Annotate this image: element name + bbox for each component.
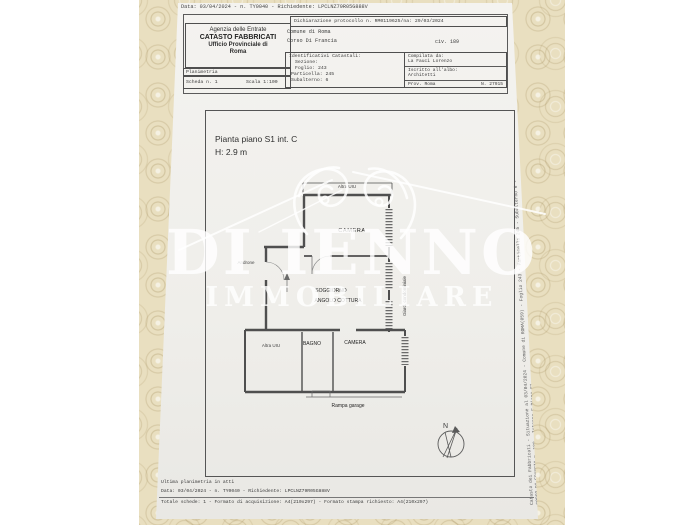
compiler-number: N. 27915 — [481, 81, 503, 88]
north-label: N — [443, 423, 448, 430]
footer-line2: Data: 03/04/2024 - n. TY0040 - Richieden… — [161, 489, 330, 494]
office-line3: Ufficio Provinciale di — [186, 42, 290, 48]
screenshot-root: Data: 03/04/2024 - n. TY0040 - Richieden… — [0, 0, 700, 525]
label-giardino-condominiale: Giard. condominiale — [402, 276, 407, 316]
sheet-number: Scheda n. 1 — [186, 80, 218, 85]
doc-type-cell: Planimetria — [183, 68, 291, 76]
room-label-angolo-cottura: ANGOLO COTTURA — [308, 298, 368, 304]
office-line1: Agenzia delle Entrate — [186, 27, 290, 33]
compiler-prov: Prov. Roma — [408, 81, 436, 88]
footer-divider — [159, 497, 534, 498]
footer-line1: Ultima planimetria in atti — [161, 480, 234, 485]
sheet-row: Scheda n. 1 Scala 1:100 — [183, 76, 291, 89]
room-label-soggiorno: SOGGIORNO — [301, 288, 361, 294]
label-rampa-garage: Rampa garage — [318, 403, 378, 409]
office-box: Agenzia delle Entrate CATASTO FABBRICATI… — [185, 23, 291, 68]
request-header-line: Data: 03/04/2024 - n. TY0040 - Richieden… — [181, 4, 368, 10]
room-label-camera-top: CAMERA — [327, 228, 377, 234]
document-page: Data: 03/04/2024 - n. TY0040 - Richieden… — [154, 0, 540, 522]
protocol-box: Dichiarazione protocollo n. RM0119625/na… — [290, 16, 507, 27]
cadastral-box: Identificativi Catastali: Sezione: Fogli… — [285, 52, 405, 88]
room-label-neighbor-top: Altra UIU — [322, 184, 372, 189]
room-label-androne: Androne — [226, 260, 266, 265]
compiler-box: Compilata da: La Fauci Lorenzo Iscritto … — [404, 52, 507, 88]
street-line: Corso Di Francia — [287, 38, 337, 44]
compiler-name: La Fauci Lorenzo — [408, 59, 506, 64]
compiler-row1: Compilata da: La Fauci Lorenzo — [405, 53, 506, 67]
compiler-row3: Prov. Roma N. 27915 — [405, 81, 506, 88]
comune-line: Comune di Roma — [287, 29, 331, 35]
side-margin-line1: Catasto dei Fabbricati - Situazione al 0… — [513, 173, 535, 505]
civic-number: civ. 189 — [435, 39, 459, 45]
cadastral-subalterno: Subalterno: 6 — [289, 78, 404, 84]
room-label-neighbor-bottom: Altra UIU — [246, 343, 296, 348]
room-label-camera-bottom: CAMERA — [330, 340, 380, 346]
sheet-scale: Scala 1:100 — [246, 80, 278, 85]
photo-background: Data: 03/04/2024 - n. TY0040 - Richieden… — [139, 0, 565, 525]
albo-value: Architetti — [408, 73, 506, 78]
office-line2: CATASTO FABBRICATI — [186, 34, 290, 41]
compiler-row2: Iscritto all'albo: Architetti — [405, 67, 506, 81]
side-margin-text: Catasto dei Fabbricati - Situazione al 0… — [513, 173, 541, 505]
north-compass-icon: N — [438, 423, 464, 458]
office-line4: Roma — [186, 49, 290, 55]
room-label-bagno: BAGNO — [292, 341, 332, 347]
footer-line3: Totale schede: 1 - Formato di acquisizio… — [161, 500, 428, 505]
